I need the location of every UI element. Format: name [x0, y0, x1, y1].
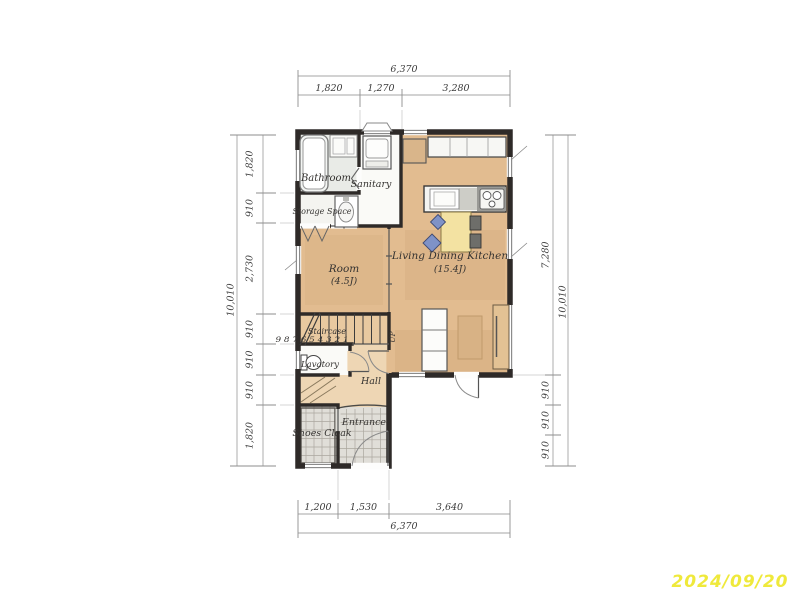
floor-plan: Bathroom Sanitary Storage Space Room (4.…: [0, 0, 800, 600]
refrigerator-icon: [403, 139, 426, 163]
bathroom-label: Bathroom: [300, 173, 351, 184]
dimensions-left: 10,010 1,820 910 2,730 910 910 910 1,820: [226, 135, 295, 466]
dim-top-seg: 1,820: [315, 83, 342, 94]
dim-right-seg: 910: [541, 411, 552, 429]
dim-left-seg: 910: [245, 320, 256, 338]
dining-chair-dark: [470, 216, 481, 230]
staircase-up-label: UP: [388, 330, 397, 342]
ldk-label: Living Dining Kitchen: [391, 250, 508, 262]
ldk-size: (15.4J): [434, 264, 467, 275]
dim-left-seg: 910: [245, 199, 256, 217]
dim-right-seg: 7,280: [541, 241, 552, 268]
dimensions-top: 6,370 1,820 1,270 3,280: [298, 64, 510, 129]
vent-hood: [362, 123, 392, 131]
dimensions-bottom: 1,200 1,530 3,640 6,370: [298, 470, 510, 538]
hall-label: Hall: [360, 376, 381, 387]
tv-board: [493, 305, 509, 369]
staircase-label: Staircase: [308, 327, 346, 336]
dim-top-seg: 3,280: [442, 83, 469, 94]
shelf-unit: [422, 309, 447, 371]
lavatory-label: Lavatory: [300, 360, 339, 370]
dining-chair-dark: [470, 234, 481, 248]
dining-table: [441, 212, 471, 252]
date-stamp: 2024/09/20: [671, 572, 788, 592]
dim-left-seg: 2,730: [245, 255, 256, 283]
dim-bottom-seg: 1,530: [350, 502, 377, 513]
dim-right-seg: 910: [541, 441, 552, 459]
dim-top-seg: 1,270: [367, 83, 394, 94]
room-label: Room: [328, 263, 360, 275]
dim-left-seg: 910: [245, 350, 256, 368]
shoes-cloak-label: Shoes Cloak: [292, 428, 352, 439]
entrance-label: Entrance: [341, 417, 387, 428]
sanitary-label: Sanitary: [351, 179, 392, 190]
room-size: (4.5J): [331, 276, 358, 287]
dim-right-seg: 910: [541, 381, 552, 399]
low-table: [458, 316, 482, 359]
dim-bottom-total: 6,370: [390, 521, 417, 532]
dim-left-seg: 1,820: [245, 150, 256, 177]
dim-left-total: 10,010: [226, 283, 237, 316]
staircase-step-numbers: 9 8 7 6 5 4 3 2 1: [276, 336, 349, 344]
ldk-terrace-door: [455, 375, 479, 398]
floor-shading: [395, 330, 507, 372]
dim-right-total: 10,010: [558, 285, 569, 318]
dim-left-seg: 910: [245, 381, 256, 399]
dim-bottom-seg: 3,640: [436, 502, 463, 513]
storage-label: Storage Space: [292, 207, 351, 216]
dim-left-seg: 1,820: [245, 422, 256, 449]
dimensions-right: 7,280 910 910 910 10,010: [513, 135, 576, 466]
dim-bottom-seg: 1,200: [304, 502, 331, 513]
dim-top-total: 6,370: [390, 64, 417, 75]
